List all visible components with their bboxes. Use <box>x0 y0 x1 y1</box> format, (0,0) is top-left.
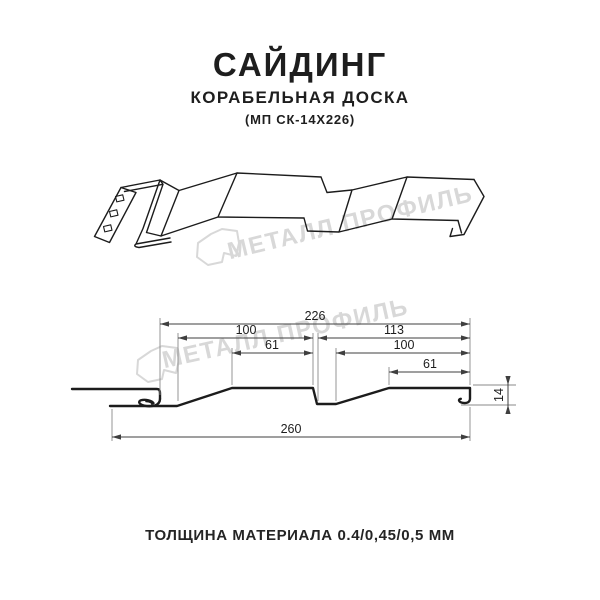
dim-label-100-right: 100 <box>394 338 415 352</box>
perforated-flange <box>95 188 137 243</box>
section-profile <box>110 388 470 406</box>
dimension-61-right: 61 <box>389 357 470 375</box>
dimension-226: 226 <box>160 309 470 327</box>
material-thickness-note: ТОЛЩИНА МАТЕРИАЛА 0.4/0,45/0,5 ММ <box>0 527 600 544</box>
product-drawing-page: САЙДИНГ КОРАБЕЛЬНАЯ ДОСКА (МП СК-14Х226)… <box>0 0 600 600</box>
watermark-text: МЕТАЛЛ ПРОФИЛЬ <box>160 293 411 374</box>
dim-label-113: 113 <box>384 323 404 337</box>
technical-drawing: МЕТАЛЛ ПРОФИЛЬ МЕТАЛЛ ПРОФИЛЬ <box>0 0 600 600</box>
hem-fold <box>121 180 171 248</box>
dim-label-61-right: 61 <box>423 357 437 371</box>
dimension-260: 260 <box>112 422 470 440</box>
dim-label-100-left: 100 <box>236 323 257 337</box>
dim-label-260: 260 <box>281 422 302 436</box>
adjoining-panel-edge <box>72 389 160 399</box>
dimension-100-right: 100 <box>336 338 470 356</box>
brand-watermark-upper: МЕТАЛЛ ПРОФИЛЬ <box>197 180 476 265</box>
dim-label-226: 226 <box>305 309 326 323</box>
lock-seam-inner <box>146 402 152 405</box>
dim-label-61-left: 61 <box>265 338 279 352</box>
dim-label-14: 14 <box>492 388 506 402</box>
dimension-14-height: 14 <box>492 376 511 414</box>
watermark-text: МЕТАЛЛ ПРОФИЛЬ <box>225 180 476 265</box>
